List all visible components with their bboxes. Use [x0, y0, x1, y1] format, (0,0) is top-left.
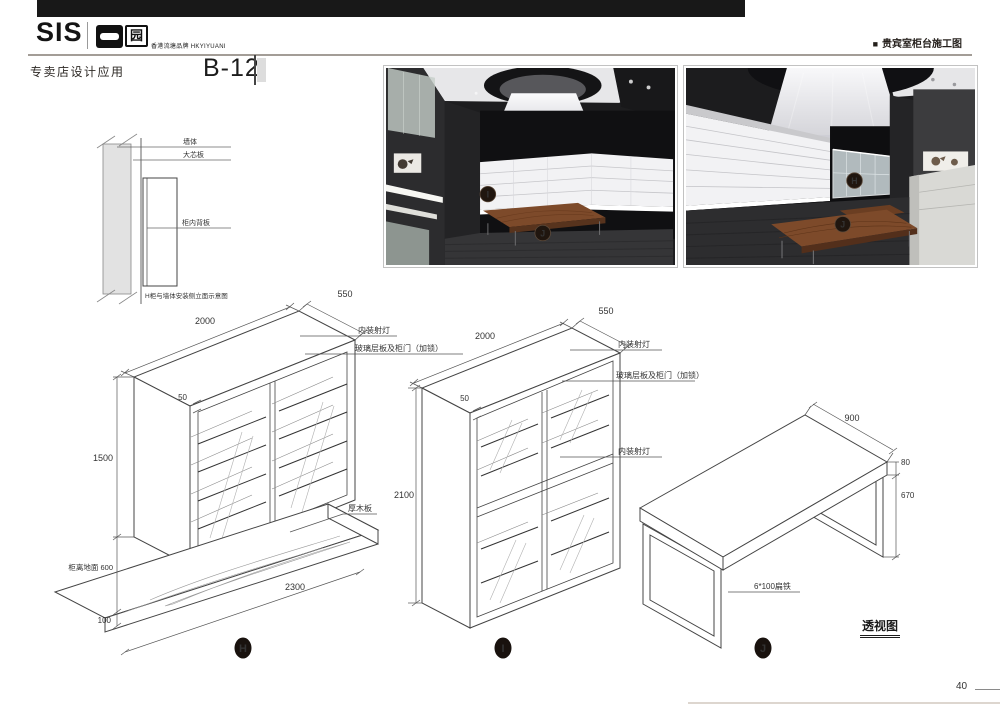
sheet-page: SIS 园 香港流塘品牌 HKYIYUANI ■贵宾室柜台施工图 专卖店设计应用…: [0, 0, 1000, 707]
dim-frame: 50: [178, 393, 187, 402]
page-number-rule: [975, 689, 1000, 690]
header-bar: [37, 0, 745, 17]
wall-shelving: [480, 153, 673, 209]
label-core-board: 大芯板: [183, 150, 204, 159]
header-rule: [28, 54, 972, 56]
svg-text:J: J: [840, 220, 845, 230]
label-back-panel: 柜内背板: [182, 218, 210, 227]
doc-title: ■贵宾室柜台施工图: [873, 35, 962, 50]
bottom-edge-rule: [688, 702, 1000, 704]
page-number: 40: [956, 681, 967, 692]
brand-badge-char: 园: [125, 25, 148, 47]
label-spotlight-top: 内装射灯: [618, 339, 650, 349]
brand-logo-sis: SIS: [36, 17, 83, 48]
table-top: [640, 415, 887, 570]
cabinet-i-body: [422, 328, 620, 628]
dim-platform-height: 100: [98, 616, 112, 625]
logo-divider: [87, 22, 88, 49]
dim-frame: 50: [460, 394, 469, 403]
svg-text:I: I: [487, 190, 489, 200]
svg-text:H: H: [239, 643, 247, 655]
photo-marker-j: J: [835, 216, 851, 232]
svg-text:J: J: [760, 643, 766, 655]
svg-text:H: H: [851, 176, 857, 186]
doc-title-text: 贵宾室柜台施工图: [882, 39, 962, 50]
sheet-code-divider: [254, 55, 256, 85]
doc-title-bullet-icon: ■: [873, 39, 878, 49]
dim-depth: 900: [844, 413, 859, 423]
label-leg-material: 6*100扁铁: [754, 581, 791, 591]
svg-text:J: J: [540, 228, 545, 238]
render-photo-right: H J: [683, 65, 978, 268]
dim-depth: 550: [337, 289, 352, 299]
marker-i: I: [495, 638, 512, 659]
label-wood-board: 厚木板: [348, 503, 372, 513]
sheet-code-shade: [257, 58, 266, 82]
render-photo-left: I J: [383, 65, 678, 268]
dim-floor-gap: 柜离地面 600: [68, 562, 113, 572]
marker-h: H: [235, 638, 252, 659]
sheet-code: B-12: [203, 54, 260, 83]
dim-width: 2000: [475, 331, 495, 341]
marker-j: J: [755, 638, 772, 659]
dim-leg-height: 670: [901, 491, 915, 500]
dim-platform-length: 2300: [285, 582, 305, 592]
section-title: 专卖店设计应用: [30, 63, 125, 80]
dim-height: 2100: [394, 490, 414, 500]
perspective-caption: 透视图: [860, 617, 900, 638]
photo-marker-h: H: [847, 173, 863, 189]
label-spotlight: 内装射灯: [358, 325, 390, 335]
label-wall: 墙体: [183, 137, 197, 146]
svg-text:I: I: [501, 643, 504, 655]
badge-stripe-icon: [100, 33, 119, 40]
photo-marker-i: I: [480, 186, 496, 202]
brand-badge-stripe: [96, 25, 123, 48]
label-glass-door: 玻璃层板及柜门（加锁）: [616, 370, 704, 380]
render-left-scene: I J: [386, 68, 675, 265]
render-right-scene: H J: [686, 68, 975, 265]
photo-marker-j: J: [535, 225, 551, 241]
dim-top-thickness: 80: [901, 458, 910, 467]
brand-tagline: 香港流塘品牌 HKYIYUANI: [151, 41, 226, 50]
dim-width: 2000: [195, 316, 215, 326]
dim-height: 1500: [93, 453, 113, 463]
dim-depth: 550: [598, 306, 613, 316]
